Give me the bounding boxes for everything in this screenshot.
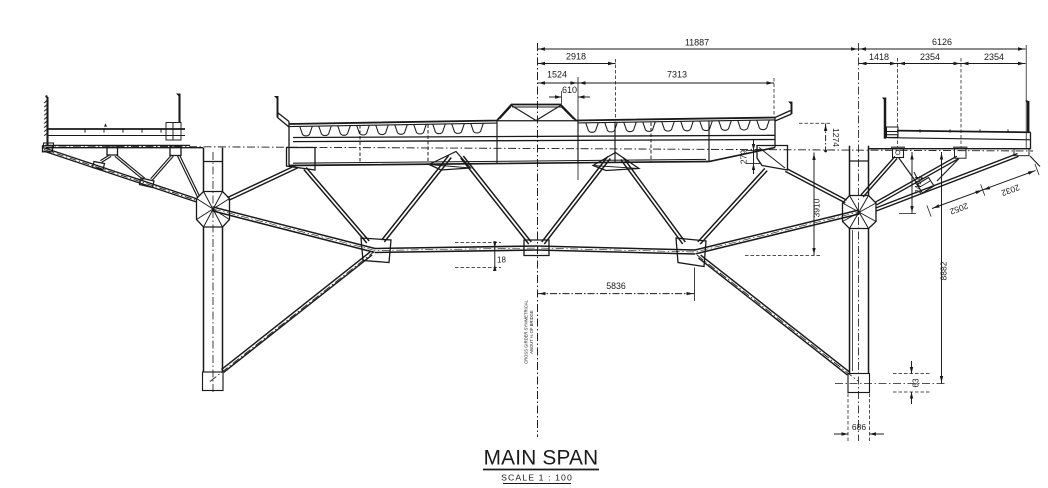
svg-text:11887: 11887 <box>685 38 709 48</box>
svg-text:1274: 1274 <box>831 128 841 147</box>
svg-text:8882: 8882 <box>939 261 949 280</box>
svg-text:610: 610 <box>562 85 577 95</box>
svg-text:279: 279 <box>739 150 749 164</box>
svg-text:ABOUT ℅ OF BRIDGE: ABOUT ℅ OF BRIDGE <box>529 310 534 354</box>
svg-text:2354: 2354 <box>920 52 940 62</box>
svg-text:18: 18 <box>497 256 506 265</box>
svg-text:686: 686 <box>852 422 866 432</box>
svg-text:1524: 1524 <box>547 70 567 80</box>
svg-text:3910: 3910 <box>812 198 822 217</box>
svg-text:2918: 2918 <box>566 52 586 62</box>
svg-text:63: 63 <box>912 378 921 387</box>
svg-text:MAIN SPAN: MAIN SPAN <box>484 447 599 470</box>
svg-text:2494: 2494 <box>914 176 923 194</box>
svg-text:CROSS GIRDER SYMMETRICAL: CROSS GIRDER SYMMETRICAL <box>524 299 529 363</box>
svg-text:SCALE 1 : 100: SCALE 1 : 100 <box>501 473 573 483</box>
svg-text:5836: 5836 <box>606 281 626 291</box>
svg-text:7313: 7313 <box>667 70 687 80</box>
svg-text:6126: 6126 <box>932 37 952 47</box>
svg-text:2354: 2354 <box>984 52 1004 62</box>
svg-text:1418: 1418 <box>869 52 889 62</box>
